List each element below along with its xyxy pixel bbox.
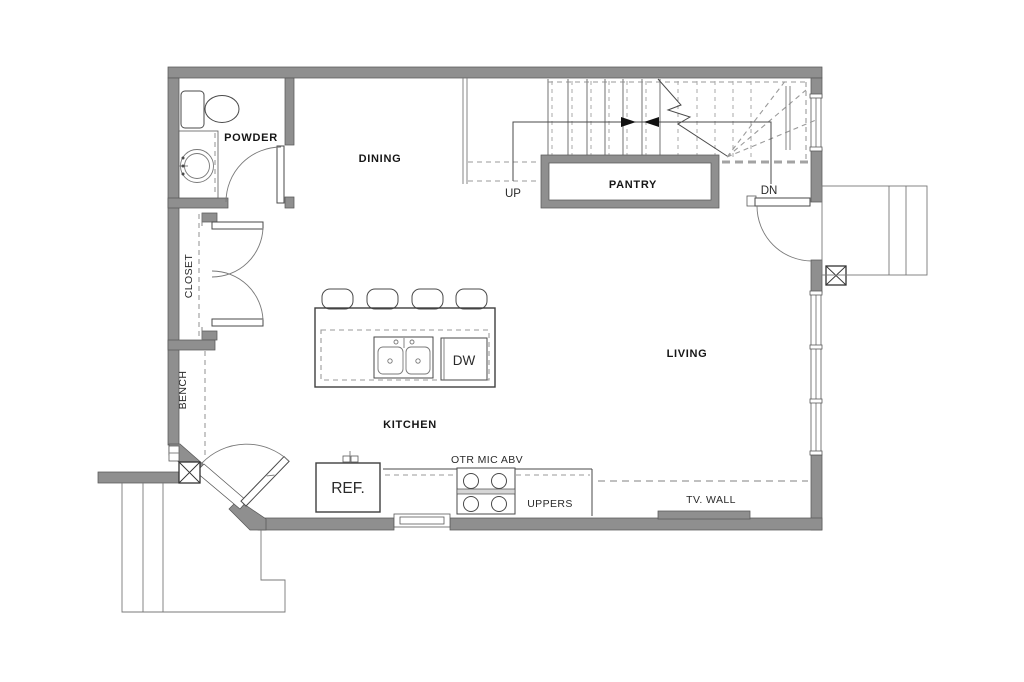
entry-threshold (196, 464, 247, 509)
break-line (658, 79, 727, 156)
vanity-sink-icon (179, 131, 218, 198)
kitchen-island: DW (315, 289, 495, 387)
stairs-down-label: DN (761, 185, 778, 197)
dishwasher-label: DW (453, 353, 476, 368)
front-porch (122, 483, 285, 612)
up-arrowhead-icon (621, 117, 636, 127)
entry-door-swing (202, 444, 289, 463)
uppers-label: UPPERS (527, 498, 573, 510)
floor-plan-drawing: UP DN PANTRY POWDER (0, 0, 1024, 682)
post-left (179, 462, 200, 483)
right-window-upper (810, 94, 822, 151)
side-landing (822, 186, 927, 275)
stairs-up-label: UP (505, 188, 521, 200)
front-entry (196, 444, 289, 509)
right-window-lower (810, 291, 822, 455)
kitchen-label: KITCHEN (383, 419, 437, 431)
closet: CLOSET (183, 213, 263, 340)
dishwasher-icon: DW (441, 338, 487, 380)
powder-room: POWDER (179, 91, 284, 203)
bottom-window (394, 514, 450, 527)
stair-treads (548, 79, 751, 158)
powder-door (226, 146, 284, 203)
handrail (786, 86, 790, 150)
tv-niche (658, 511, 750, 519)
kitchen-counter: REF. OTR MIC ABV UPPERS (316, 451, 592, 516)
closet-double-doors (212, 222, 263, 326)
refrigerator-icon: REF. (316, 451, 380, 512)
pantry-box: PANTRY (541, 155, 719, 208)
bar-stools-icon (322, 289, 487, 309)
otr-microwave-label: OTR MIC ABV (451, 454, 523, 466)
porch-wall-stub (98, 472, 180, 483)
entry-side-window (169, 446, 179, 461)
dining-label: DINING (359, 153, 402, 165)
tv-wall-label: TV. WALL (686, 494, 736, 506)
post-right (826, 266, 846, 285)
double-sink-icon (374, 337, 433, 378)
bench-label: BENCH (177, 371, 189, 410)
pantry-label: PANTRY (609, 179, 657, 191)
down-arrowhead-icon (644, 117, 659, 127)
floor-plan-page: UP DN PANTRY POWDER (0, 0, 1024, 682)
living-entry-door (747, 196, 812, 261)
bench-area: BENCH (177, 351, 205, 457)
closet-label: CLOSET (183, 254, 195, 299)
living-label: LIVING (667, 348, 708, 360)
entry-door-leaf (241, 457, 289, 506)
refrigerator-label: REF. (331, 480, 365, 497)
powder-label: POWDER (224, 132, 278, 144)
toilet-icon (181, 91, 239, 128)
range-icon (457, 468, 515, 514)
